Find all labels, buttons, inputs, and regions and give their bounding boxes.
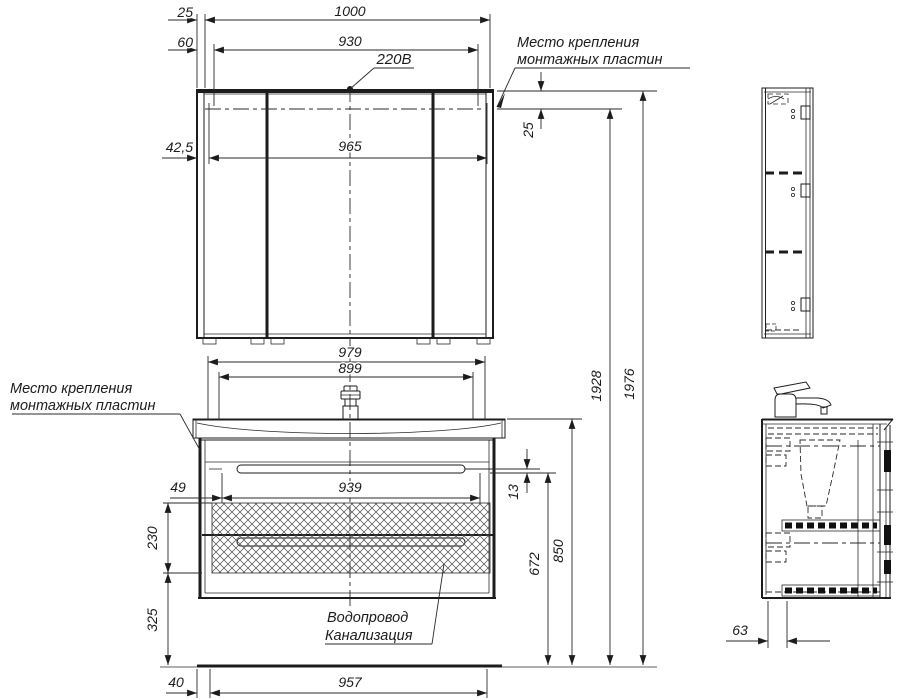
dim-979: 979 [338,344,362,360]
floor-line [160,666,657,667]
dimension-groove-13: 13 [465,449,556,500]
dimension-side-25: 25 [497,72,657,139]
dim-850: 850 [550,539,566,563]
mirror-cabinet-side-view [762,88,813,338]
top-bracket-detail [768,94,788,104]
dim-60: 60 [177,34,193,50]
dim-325: 325 [144,608,160,632]
note-plumbing-line1: Водопровод [327,610,408,626]
vanity-side-view [762,382,893,598]
dim-1928: 1928 [588,370,604,401]
wall-bracket-icons [791,106,810,311]
dimension-right-heights: 672 850 1928 1976 [507,91,643,665]
note-mount-top: Место крепления монтажных пластин [497,35,690,108]
dimension-plate-span: 42,5 965 [162,103,487,164]
dim-957: 957 [338,674,363,690]
dim-25-top: 25 [176,4,193,20]
note-plumbing-line2: Канализация [325,628,413,644]
mirror-cabinet-front-view [197,90,493,344]
drawing-canvas: 25 1000 60 930 220В 42,5 965 25 979 899 [0,0,900,700]
dim-930: 930 [338,33,362,49]
dim-40: 40 [168,674,184,690]
note-mount-left-line1: Место крепления [10,381,132,397]
dimension-drawer-row: 49 939 [170,473,480,503]
dim-939: 939 [338,479,362,495]
sink-bowl-hidden [800,440,840,518]
dim-42-5: 42,5 [166,139,193,155]
dimension-bottom-row: 40 957 [166,669,487,698]
back-panel-fixings [877,442,893,582]
faucet-front [341,386,360,419]
drawer-slides [782,520,880,596]
dim-13: 13 [505,484,521,500]
dim-1000: 1000 [334,3,365,19]
note-plumbing: Водопровод Канализация [325,564,444,644]
dim-63: 63 [732,622,748,638]
note-mount-top-line1: Место крепления [517,35,639,51]
note-mount-top-line2: монтажных пластин [517,52,662,68]
power-label: 220В [375,51,411,68]
dim-965: 965 [338,138,362,154]
note-mount-left: Место крепления монтажных пластин [10,381,201,452]
power-callout: 220В [347,51,414,92]
dim-230: 230 [144,526,160,551]
dimension-left-heights: 230 325 [144,503,212,665]
plumbing-zone-hatch [212,503,490,573]
dim-899: 899 [338,360,362,376]
faucet-side [774,382,831,417]
sink-top-front [193,419,505,438]
dim-49: 49 [170,479,186,495]
dim-672: 672 [526,552,542,576]
dim-1976: 1976 [621,368,637,399]
dimension-63: 63 [726,601,830,648]
installation-drawing: 25 1000 60 930 220В 42,5 965 25 979 899 [0,0,900,700]
dimension-vanity-widths: 979 899 [208,344,485,420]
dim-25-side: 25 [520,122,536,139]
note-mount-left-line2: монтажных пластин [10,398,155,414]
